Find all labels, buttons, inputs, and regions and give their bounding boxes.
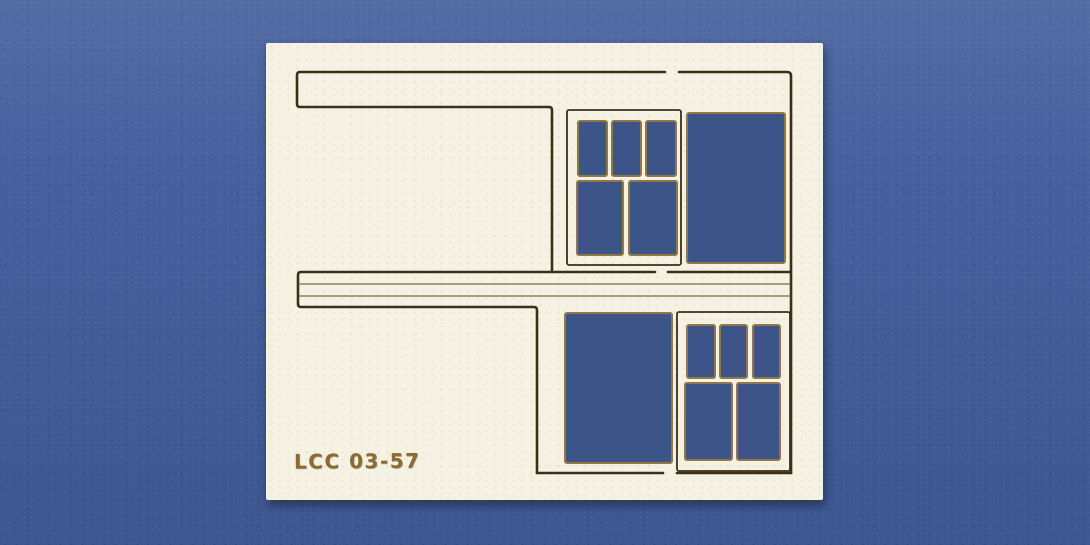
upper-window-top-pane-2 [612, 121, 641, 176]
upper-door-opening-cutout [687, 113, 785, 263]
lower-door-opening-cutout [565, 313, 672, 463]
lower-window-top-pane-1 [687, 325, 715, 378]
upper-window-bottom-pane-2 [629, 181, 677, 255]
lower-window-bottom-pane-2 [737, 383, 780, 460]
engraved-part-code: LCC 03-57 [294, 449, 421, 474]
lower-window-bottom-pane-1 [685, 383, 732, 460]
lower-window-top-pane-3 [753, 325, 780, 378]
cut-and-score-pattern [266, 43, 823, 500]
lower-window-top-pane-2 [720, 325, 747, 378]
blue-paper-background: LCC 03-57 [0, 0, 1090, 545]
upper-window-bottom-pane-1 [577, 181, 623, 255]
upper-window-top-pane-1 [578, 121, 607, 176]
upper-window-top-pane-3 [646, 121, 676, 176]
laser-cut-card-sprite: LCC 03-57 [266, 43, 823, 500]
